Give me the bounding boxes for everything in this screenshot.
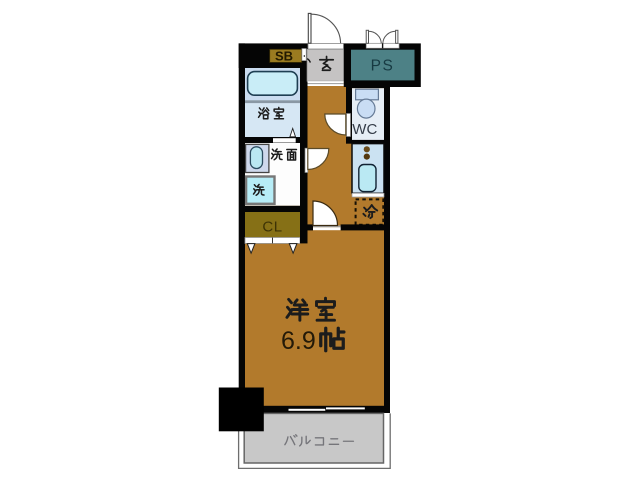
svg-text:6.9: 6.9 bbox=[281, 327, 316, 355]
svg-text:SB: SB bbox=[275, 49, 293, 64]
svg-text:CL: CL bbox=[262, 219, 282, 236]
svg-text:PS: PS bbox=[371, 58, 395, 75]
svg-text:WC: WC bbox=[352, 121, 377, 138]
